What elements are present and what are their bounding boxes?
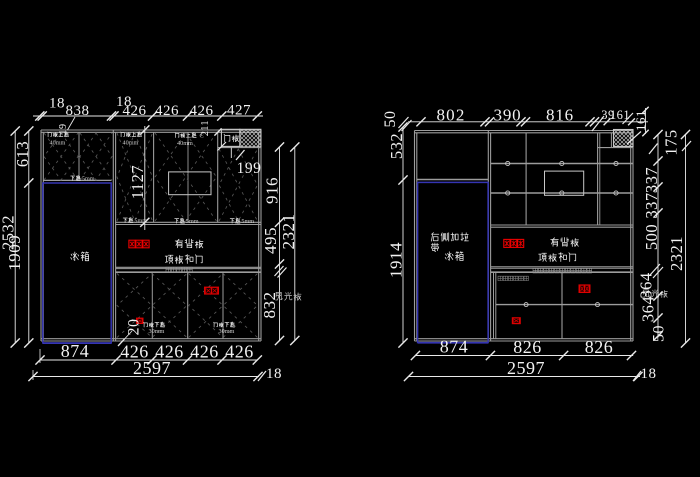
svg-text:364: 364 (639, 296, 658, 322)
svg-text:50: 50 (651, 325, 668, 342)
svg-text:30mm: 30mm (149, 328, 165, 335)
svg-text:18: 18 (49, 96, 65, 112)
svg-text:826: 826 (585, 337, 614, 357)
svg-text:2597: 2597 (133, 358, 171, 378)
svg-text:838: 838 (66, 103, 90, 119)
svg-text:427: 427 (227, 103, 251, 119)
svg-text:426: 426 (190, 103, 214, 119)
svg-text:495: 495 (261, 227, 280, 254)
svg-text:500: 500 (642, 224, 661, 250)
svg-text:5mm: 5mm (134, 218, 147, 225)
svg-text:426: 426 (190, 342, 219, 362)
svg-text:175: 175 (662, 129, 681, 155)
svg-text:C: C (200, 133, 204, 140)
svg-text:874: 874 (61, 341, 90, 361)
svg-text:1127: 1127 (128, 165, 147, 199)
svg-text:2597: 2597 (507, 358, 545, 378)
svg-text:390: 390 (494, 106, 522, 125)
svg-text:916: 916 (263, 177, 282, 204)
svg-text:2321: 2321 (279, 214, 298, 250)
svg-text:816: 816 (546, 106, 574, 125)
svg-text:426: 426 (123, 103, 147, 119)
svg-text:426: 426 (155, 103, 179, 119)
svg-text:40mm: 40mm (177, 140, 193, 147)
svg-text:1909: 1909 (5, 235, 24, 271)
svg-text:874: 874 (440, 337, 469, 357)
svg-text:18: 18 (641, 366, 657, 382)
svg-text:199: 199 (237, 160, 262, 177)
svg-text:5mm: 5mm (186, 218, 199, 225)
svg-text:826: 826 (513, 337, 542, 357)
svg-text:20: 20 (126, 319, 143, 336)
svg-text:50: 50 (382, 111, 399, 128)
svg-text:337: 337 (642, 167, 661, 193)
svg-text:337: 337 (642, 192, 661, 218)
svg-text:532: 532 (387, 133, 406, 159)
svg-text:30mm: 30mm (219, 328, 235, 335)
svg-text:2321: 2321 (667, 236, 686, 271)
svg-text:18: 18 (266, 366, 282, 382)
svg-text:1914: 1914 (387, 242, 406, 278)
svg-text:426: 426 (225, 342, 254, 362)
svg-text:364: 364 (637, 272, 656, 298)
svg-text:5mm: 5mm (241, 218, 254, 225)
svg-text:802: 802 (436, 106, 465, 125)
svg-text:40mm: 40mm (50, 139, 66, 146)
svg-text:5mm: 5mm (82, 176, 95, 183)
svg-text:40mm: 40mm (123, 139, 139, 146)
svg-text:613: 613 (13, 141, 32, 167)
svg-text:19: 19 (58, 124, 69, 135)
svg-text:161: 161 (633, 110, 648, 131)
